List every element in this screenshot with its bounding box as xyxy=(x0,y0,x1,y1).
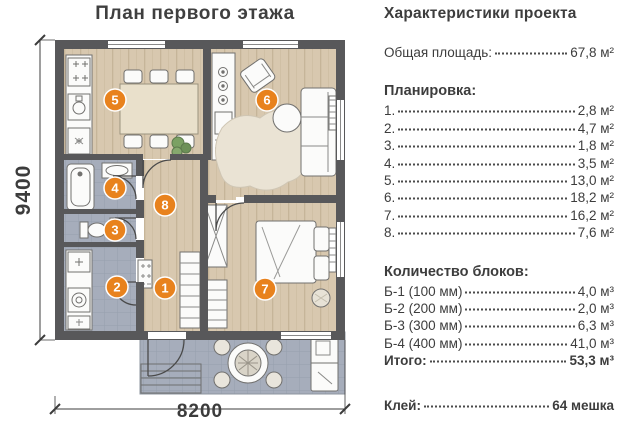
block-value: 41,0 м³ xyxy=(570,335,614,352)
radiator xyxy=(329,228,336,272)
layout-row-3: 3. 1,8 м² xyxy=(384,137,614,154)
dim-width-label: 8200 xyxy=(177,401,223,422)
layout-value: 7,6 м² xyxy=(578,224,614,241)
layout-value: 3,5 м² xyxy=(578,155,614,172)
svg-text:3: 3 xyxy=(111,223,118,238)
svg-text:7: 7 xyxy=(261,282,268,297)
total-area-row: Общая площадь: 67,8 м² xyxy=(384,44,614,61)
laundry-furniture xyxy=(66,250,92,330)
bathtub-drain xyxy=(78,172,82,176)
dot-leader xyxy=(465,291,574,293)
dim-ext-left xyxy=(40,40,55,340)
wall-bedroom-top xyxy=(244,195,336,203)
dot-leader xyxy=(430,361,567,363)
dot-leader xyxy=(424,405,549,407)
layout-value: 18,2 м² xyxy=(570,189,614,206)
pillow xyxy=(314,227,329,251)
room-marker-6: 6 xyxy=(256,89,278,111)
layout-label: 2. xyxy=(384,120,395,137)
spec-title: Характеристики проекта xyxy=(384,5,614,23)
layout-label: 1. xyxy=(384,102,395,119)
blocks-total-label: Итого: xyxy=(384,352,427,369)
terrace-chair xyxy=(266,339,282,355)
block-row-3: Б-3 (300 мм) 6,3 м³ xyxy=(384,317,614,334)
coffee-table xyxy=(273,104,301,132)
layout-row-5: 5. 13,0 м² xyxy=(384,172,614,189)
block-value: 6,3 м³ xyxy=(578,317,614,334)
layout-value: 1,8 м² xyxy=(578,137,614,154)
bed xyxy=(256,221,316,283)
block-row-1: Б-1 (100 мм) 4,0 м³ xyxy=(384,283,614,300)
dot-leader xyxy=(465,343,567,345)
cabinet-mark xyxy=(75,138,83,144)
wall-left xyxy=(55,40,64,340)
blocks-total-row: Итого: 53,3 м³ xyxy=(384,352,614,369)
layout-label: 5. xyxy=(384,172,395,189)
wall-hall-left xyxy=(136,200,144,218)
wall-bath-wc xyxy=(64,209,136,214)
layout-row-2: 2. 4,7 м² xyxy=(384,120,614,137)
stove xyxy=(68,58,90,86)
wall-bedroom-top xyxy=(208,195,216,203)
toilet-tank xyxy=(80,222,88,238)
dot-leader xyxy=(398,233,574,235)
layout-label: 8. xyxy=(384,224,395,241)
layout-row-8: 8. 7,6 м² xyxy=(384,224,614,241)
dot-leader xyxy=(495,53,567,55)
dot-leader xyxy=(398,128,574,130)
dot-leader xyxy=(398,163,574,165)
dim-height-label: 9400 xyxy=(12,165,35,216)
svg-text:6: 6 xyxy=(263,93,270,108)
dot-leader xyxy=(398,111,574,113)
terrace-chair xyxy=(214,339,230,355)
layout-label: 3. xyxy=(384,137,395,154)
washing-machine xyxy=(68,288,90,312)
burner-dot xyxy=(222,71,224,73)
svg-text:1: 1 xyxy=(161,281,168,296)
chair xyxy=(124,135,142,148)
glue-label: Клей: xyxy=(384,397,421,414)
room-marker-1: 1 xyxy=(154,277,176,299)
chair xyxy=(124,70,142,83)
blocks-header: Количество блоков: xyxy=(384,264,614,280)
chair xyxy=(150,135,168,148)
dining-table xyxy=(120,84,198,134)
room-marker-5: 5 xyxy=(104,89,126,111)
blocks-total-value: 53,3 м³ xyxy=(569,352,614,369)
page: План первого этажа xyxy=(0,0,632,433)
pillow xyxy=(314,256,329,280)
burner-dot xyxy=(222,99,224,101)
dot-leader xyxy=(398,215,567,217)
wall-hall-bedroom xyxy=(200,160,208,331)
layout-value: 2,8 м² xyxy=(578,102,614,119)
chair xyxy=(176,70,194,83)
dresser xyxy=(205,280,227,328)
kitchen-furniture xyxy=(66,55,198,157)
wall-kitchen-column xyxy=(203,40,211,160)
dot-leader xyxy=(398,181,567,183)
chair xyxy=(150,70,168,83)
burner-dot xyxy=(222,85,224,87)
layout-value: 4,7 м² xyxy=(578,120,614,137)
wall-hall-left xyxy=(136,282,144,331)
floor-plan: 9400 8200 5 6 4 3 2 xyxy=(0,0,390,433)
dot-leader xyxy=(465,326,574,328)
room-marker-2: 2 xyxy=(106,276,128,298)
total-area-value: 67,8 м² xyxy=(570,44,614,61)
dot-leader xyxy=(398,146,574,148)
glue-value: 64 мешка xyxy=(552,397,614,414)
block-value: 2,0 м³ xyxy=(578,300,614,317)
terrace-chair xyxy=(266,372,282,388)
svg-text:5: 5 xyxy=(111,93,118,108)
layout-label: 4. xyxy=(384,155,395,172)
block-row-2: Б-2 (200 мм) 2,0 м³ xyxy=(384,300,614,317)
wall-kitchen-hall xyxy=(64,154,143,160)
radiator xyxy=(329,96,336,130)
wall-right xyxy=(336,40,345,340)
layout-row-1: 1. 2,8 м² xyxy=(384,102,614,119)
layout-label: 7. xyxy=(384,207,395,224)
room-marker-4: 4 xyxy=(104,177,126,199)
svg-text:4: 4 xyxy=(111,181,119,196)
terrace-chair xyxy=(214,372,230,388)
wall-top xyxy=(55,40,345,49)
layout-header: Планировка: xyxy=(384,83,614,99)
layout-row-6: 6. 18,2 м² xyxy=(384,189,614,206)
block-value: 4,0 м³ xyxy=(578,283,614,300)
layout-row-7: 7. 16,2 м² xyxy=(384,207,614,224)
room-marker-7: 7 xyxy=(254,278,276,300)
entry-door-opening xyxy=(148,332,186,339)
spec-panel: Характеристики проекта Общая площадь: 67… xyxy=(384,5,614,414)
layout-row-4: 4. 3,5 м² xyxy=(384,155,614,172)
dot-leader xyxy=(465,309,574,311)
layout-value: 13,0 м² xyxy=(570,172,614,189)
block-label: Б-4 (400 мм) xyxy=(384,335,462,352)
room-marker-3: 3 xyxy=(104,219,126,241)
sink-tap xyxy=(76,96,82,101)
wall-wc-laundry xyxy=(64,242,136,247)
wall-hall-left xyxy=(136,240,144,258)
total-area-label: Общая площадь: xyxy=(384,44,492,61)
block-label: Б-3 (300 мм) xyxy=(384,317,462,334)
room-marker-8: 8 xyxy=(154,194,176,216)
svg-text:2: 2 xyxy=(113,280,120,295)
svg-text:8: 8 xyxy=(161,198,168,213)
block-row-4: Б-4 (400 мм) 41,0 м³ xyxy=(384,335,614,352)
dot-leader xyxy=(398,198,567,200)
block-label: Б-2 (200 мм) xyxy=(384,300,462,317)
layout-label: 6. xyxy=(384,189,395,206)
layout-value: 16,2 м² xyxy=(570,207,614,224)
block-label: Б-1 (100 мм) xyxy=(384,283,462,300)
glue-row: Клей: 64 мешка xyxy=(384,397,614,414)
